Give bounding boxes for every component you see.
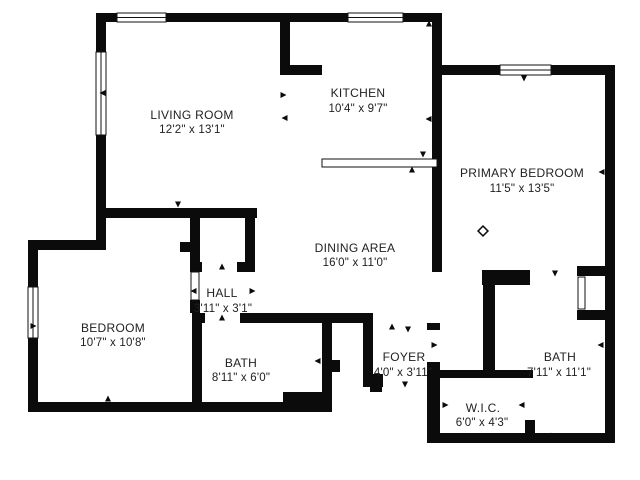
room-name: FOYER bbox=[383, 350, 426, 364]
room-label-primary-bath: BATH 7'11" x 11'1" bbox=[527, 350, 591, 379]
window-living-top bbox=[117, 13, 166, 22]
room-label-bath: BATH 8'11" x 6'0" bbox=[212, 356, 270, 384]
door-marker bbox=[426, 116, 432, 122]
door-marker bbox=[282, 115, 288, 121]
room-name: KITCHEN bbox=[331, 86, 386, 100]
room-dimensions: 7'11" x 11'1" bbox=[527, 367, 591, 379]
floor-plan-page: LIVING ROOM 12'2" x 13'1" KITCHEN 10'4" … bbox=[0, 0, 640, 480]
door-marker bbox=[281, 92, 287, 98]
marker-diamond bbox=[478, 226, 488, 236]
door-marker bbox=[389, 324, 395, 330]
room-dimensions: 12'2" x 13'1" bbox=[159, 124, 225, 136]
room-dimensions: 6'0" x 4'3" bbox=[456, 417, 508, 429]
door-marker bbox=[519, 402, 525, 408]
door-marker bbox=[105, 396, 111, 402]
door-marker bbox=[219, 315, 225, 321]
door-marker bbox=[521, 76, 527, 82]
room-name: LIVING ROOM bbox=[150, 108, 233, 122]
room-label-foyer: FOYER 4'0" x 3'11" bbox=[374, 350, 432, 379]
door-marker bbox=[402, 382, 408, 388]
room-label-hall: HALL 3'11" x 3'1" bbox=[194, 286, 252, 315]
room-dimensions: 10'4" x 9'7" bbox=[328, 103, 387, 115]
room-label-dining-area: DINING AREA 16'0" x 11'0" bbox=[315, 241, 396, 269]
door-marker bbox=[315, 358, 321, 364]
kitchen-counter bbox=[322, 159, 437, 167]
floor-plan-svg: LIVING ROOM 12'2" x 13'1" KITCHEN 10'4" … bbox=[0, 0, 640, 480]
room-label-primary-bedroom: PRIMARY BEDROOM 11'5" x 13'5" bbox=[460, 166, 584, 195]
door-marker bbox=[432, 342, 438, 348]
door-marker bbox=[420, 152, 426, 158]
door-marker bbox=[250, 288, 256, 294]
closet-right-wall bbox=[578, 277, 585, 309]
room-label-living-room: LIVING ROOM 12'2" x 13'1" bbox=[150, 108, 233, 136]
room-dimensions: 3'11" x 3'1" bbox=[194, 303, 252, 315]
room-name: BATH bbox=[225, 356, 257, 370]
room-name: HALL bbox=[206, 286, 237, 300]
room-dimensions: 16'0" x 11'0" bbox=[323, 257, 388, 269]
room-name: W.I.C. bbox=[466, 401, 500, 415]
room-dimensions: 10'7" x 10'8" bbox=[80, 337, 146, 349]
door-marker bbox=[443, 402, 449, 408]
room-label-bedroom: BEDROOM 10'7" x 10'8" bbox=[80, 321, 146, 349]
room-dimensions: 8'11" x 6'0" bbox=[212, 372, 270, 384]
door-marker bbox=[219, 264, 225, 270]
door-marker bbox=[598, 342, 604, 348]
room-name: DINING AREA bbox=[315, 241, 396, 255]
room-dimensions: 11'5" x 13'5" bbox=[490, 183, 555, 195]
window-bedroom-left bbox=[28, 287, 38, 338]
room-dimensions: 4'0" x 3'11" bbox=[374, 367, 432, 379]
room-name: BEDROOM bbox=[81, 321, 145, 335]
window-kitchen-top bbox=[348, 13, 403, 22]
bedroom-doorway-casing bbox=[191, 272, 199, 300]
door-marker bbox=[599, 169, 605, 175]
room-name: PRIMARY BEDROOM bbox=[460, 166, 584, 180]
door-marker bbox=[175, 202, 181, 208]
room-label-kitchen: KITCHEN 10'4" x 9'7" bbox=[328, 86, 387, 115]
door-marker bbox=[552, 271, 558, 277]
room-name: BATH bbox=[544, 350, 576, 364]
door-marker bbox=[405, 327, 411, 333]
window-primary-top bbox=[500, 65, 551, 75]
room-label-walk-in-closet: W.I.C. 6'0" x 4'3" bbox=[456, 401, 508, 429]
